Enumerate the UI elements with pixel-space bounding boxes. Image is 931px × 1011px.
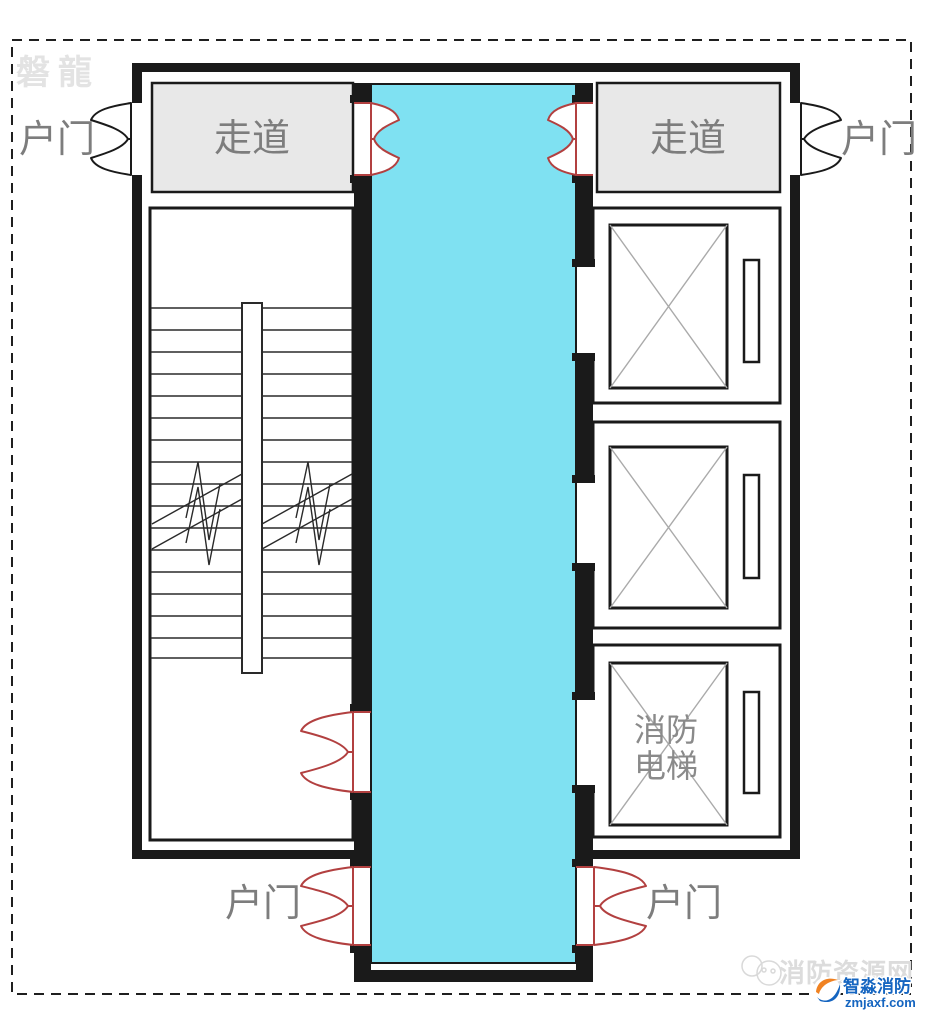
hallway-right-label: 走道 bbox=[650, 118, 726, 160]
logo-domain-text: zmjaxf.com bbox=[845, 995, 916, 1010]
unit-door-label-bottom-left: 户门 bbox=[225, 883, 301, 925]
unit-door-label-top-right: 户门 bbox=[841, 119, 917, 161]
door-bottom-left-red bbox=[301, 867, 353, 945]
elevator-1-counterweight bbox=[744, 260, 759, 362]
hallway-left-label: 走道 bbox=[214, 118, 290, 160]
hallway-left: 走道 bbox=[152, 83, 353, 192]
elevator-2-counterweight bbox=[744, 475, 759, 578]
brand-logo: 智淼消防 zmjaxf.com bbox=[813, 976, 917, 1010]
fire-elevator-counterweight bbox=[744, 692, 759, 793]
door-top-right-exterior bbox=[801, 103, 841, 175]
door-bottom-right-red bbox=[594, 867, 646, 945]
stair-divider-wall bbox=[242, 303, 262, 673]
fire-elevator-shaft: 消防 电梯 bbox=[589, 645, 780, 837]
watermark-top-left: 磐龍 bbox=[16, 54, 100, 92]
fire-elevator-label-line1: 消防 bbox=[634, 712, 698, 748]
unit-door-label-bottom-right: 户门 bbox=[646, 883, 722, 925]
door-top-left-exterior bbox=[91, 103, 131, 175]
unit-door-label-top-left: 户门 bbox=[19, 119, 95, 161]
elevator-shaft-2 bbox=[589, 422, 780, 628]
fire-evacuation-floor-plan: 磐龍 走道 走道 bbox=[0, 0, 931, 1011]
fire-elevator-label-line2: 电梯 bbox=[634, 748, 698, 784]
logo-name-text: 智淼消防 bbox=[843, 976, 911, 996]
staircase bbox=[150, 208, 357, 840]
evacuation-corridor bbox=[371, 84, 576, 963]
hallway-right: 走道 bbox=[597, 83, 780, 192]
elevator-shaft-1 bbox=[589, 208, 780, 403]
